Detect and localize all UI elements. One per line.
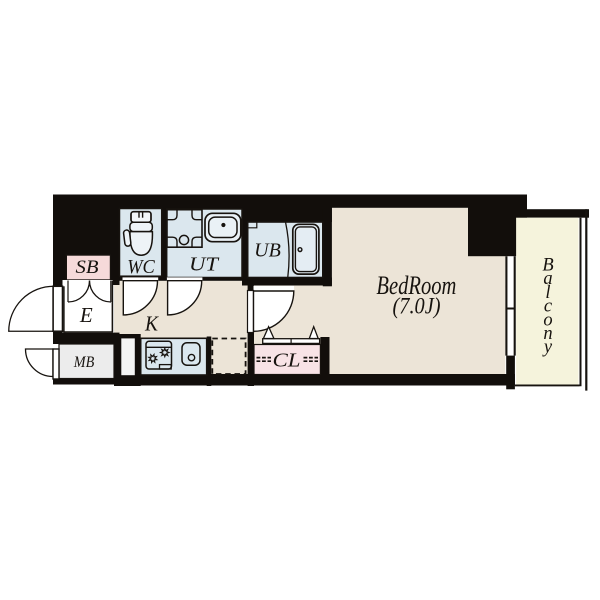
svg-text:MB: MB bbox=[73, 354, 95, 371]
svg-text:CL: CL bbox=[273, 350, 301, 372]
svg-text:(7.0J): (7.0J) bbox=[393, 294, 441, 319]
svg-text:WC: WC bbox=[127, 256, 155, 278]
svg-text:UT: UT bbox=[189, 254, 220, 276]
svg-text:SB: SB bbox=[76, 257, 99, 278]
svg-text:UB: UB bbox=[254, 240, 281, 262]
svg-text:E: E bbox=[79, 303, 93, 327]
svg-text:K: K bbox=[144, 312, 159, 336]
svg-text:Balcony: Balcony bbox=[542, 256, 554, 358]
